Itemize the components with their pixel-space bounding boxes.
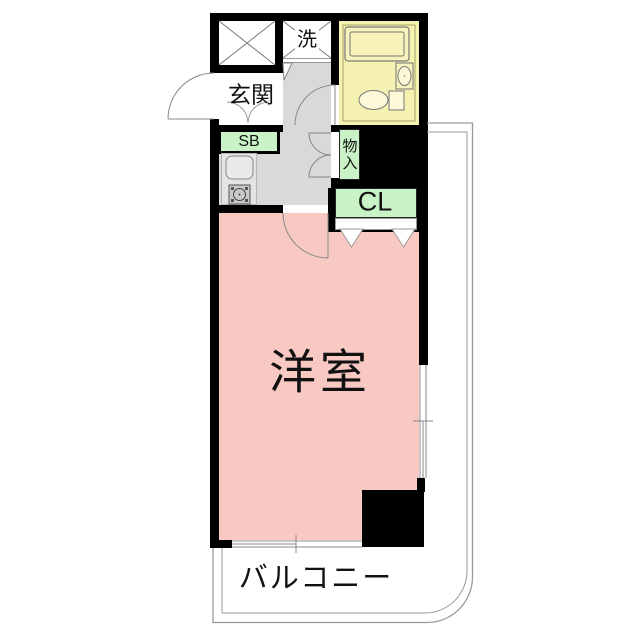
shoe-box-label: SB	[238, 134, 259, 150]
storage-doorway	[331, 132, 339, 178]
storage-label: 物入	[342, 138, 358, 173]
pipe-space	[219, 21, 275, 65]
wall	[210, 119, 219, 548]
hallway	[283, 63, 331, 205]
entrance-label: 玄関	[228, 84, 274, 107]
washer-space-label: 洗	[295, 29, 319, 51]
unit-bath	[339, 21, 419, 125]
wall	[275, 13, 283, 73]
balcony-label: バルコニー	[239, 565, 393, 594]
western-room-label: 洋室	[269, 349, 371, 396]
floor-plan: 玄関 洗 SB 物入 CL 洋室 バルコニー	[0, 0, 640, 640]
wall	[210, 13, 428, 21]
entrance-door-swing	[168, 73, 214, 119]
window-south	[232, 540, 362, 548]
wall	[210, 13, 219, 73]
kitchen-counter	[221, 153, 257, 205]
wall	[362, 490, 424, 547]
laundry-shelf	[283, 58, 331, 63]
wall	[210, 205, 283, 213]
closet-door	[335, 218, 417, 230]
wall	[331, 13, 339, 85]
wall	[210, 540, 232, 548]
closet-label: CL	[358, 189, 393, 216]
wall	[210, 65, 283, 73]
window-east	[419, 365, 427, 478]
